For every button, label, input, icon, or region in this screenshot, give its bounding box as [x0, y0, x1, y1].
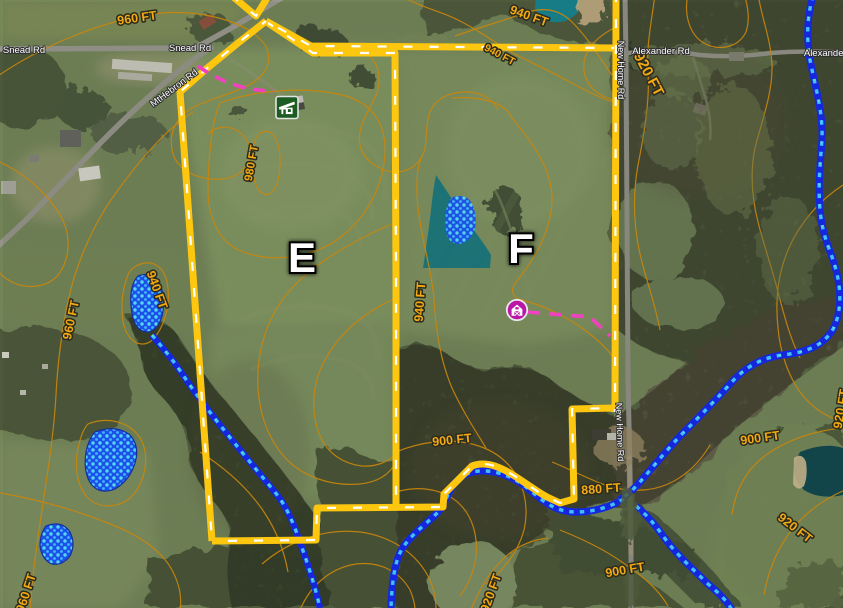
svg-text:880 FT: 880 FT [581, 481, 622, 498]
svg-text:New Home Rd: New Home Rd [616, 41, 626, 100]
svg-text:F: F [508, 225, 534, 272]
svg-text:Snead Rd: Snead Rd [3, 45, 45, 56]
svg-text:Alexander R: Alexander R [804, 48, 843, 59]
svg-text:Alexander Rd: Alexander Rd [632, 46, 690, 57]
svg-text:940 FT: 940 FT [412, 281, 429, 322]
svg-text:Snead Rd: Snead Rd [169, 43, 211, 54]
svg-text:E: E [288, 234, 316, 281]
svg-text:New Home Rd: New Home Rd [614, 403, 626, 462]
